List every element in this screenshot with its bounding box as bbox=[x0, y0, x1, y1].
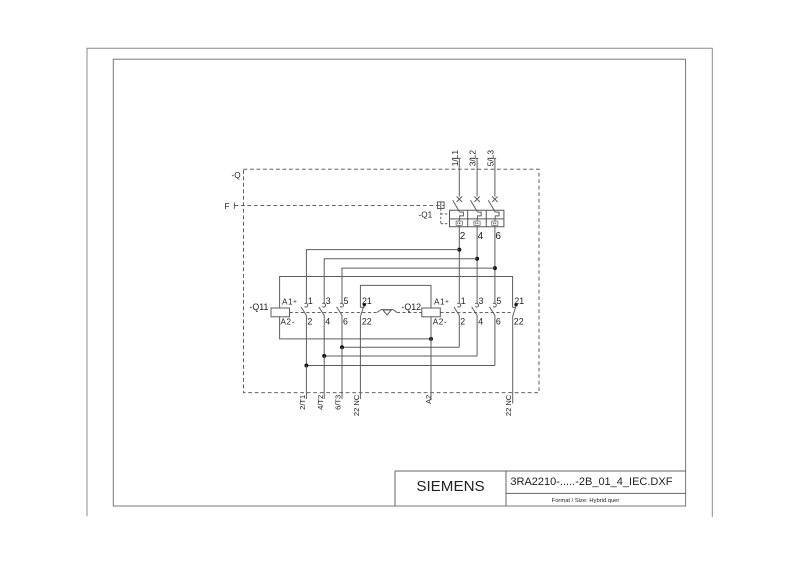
svg-text:A2-: A2- bbox=[433, 318, 448, 327]
svg-text:21: 21 bbox=[514, 296, 524, 306]
svg-text:3RA2210-.....-2B_01_4_IEC.DXF: 3RA2210-.....-2B_01_4_IEC.DXF bbox=[510, 476, 672, 488]
svg-text:SIEMENS: SIEMENS bbox=[416, 478, 484, 495]
svg-text:6/T3: 6/T3 bbox=[334, 395, 343, 410]
svg-text:21: 21 bbox=[362, 296, 372, 306]
svg-text:6: 6 bbox=[496, 317, 501, 327]
svg-text:Format / Size: Hybrid.quer: Format / Size: Hybrid.quer bbox=[552, 498, 620, 504]
svg-text:F: F bbox=[225, 202, 230, 211]
svg-text:A2-: A2- bbox=[281, 318, 296, 327]
svg-text:22 NC: 22 NC bbox=[352, 394, 361, 416]
svg-text:A1+: A1+ bbox=[434, 298, 449, 307]
svg-text:-Q1: -Q1 bbox=[419, 211, 433, 220]
svg-text:-Q12: -Q12 bbox=[402, 302, 422, 312]
svg-text:2: 2 bbox=[460, 317, 465, 327]
svg-text:22 NC: 22 NC bbox=[504, 394, 513, 416]
svg-text:6: 6 bbox=[495, 231, 501, 242]
svg-text:2: 2 bbox=[460, 231, 466, 242]
svg-text:-Q: -Q bbox=[232, 171, 241, 180]
svg-text:4: 4 bbox=[325, 317, 330, 327]
svg-text:A1+: A1+ bbox=[282, 298, 297, 307]
svg-text:5: 5 bbox=[496, 296, 501, 306]
svg-text:-Q11: -Q11 bbox=[250, 302, 269, 312]
svg-text:4: 4 bbox=[478, 317, 483, 327]
svg-text:A2: A2 bbox=[424, 395, 433, 404]
svg-text:2: 2 bbox=[307, 317, 312, 327]
svg-text:2/T1: 2/T1 bbox=[298, 395, 307, 410]
svg-text:1: 1 bbox=[308, 296, 313, 306]
svg-text:3: 3 bbox=[479, 296, 484, 306]
svg-text:22: 22 bbox=[362, 317, 372, 327]
svg-text:6: 6 bbox=[343, 317, 348, 327]
svg-text:5: 5 bbox=[344, 296, 349, 306]
svg-text:22: 22 bbox=[514, 317, 524, 327]
svg-text:3: 3 bbox=[326, 296, 331, 306]
svg-text:4/T2: 4/T2 bbox=[316, 395, 325, 410]
svg-text:4: 4 bbox=[478, 231, 484, 242]
svg-text:1: 1 bbox=[461, 296, 466, 306]
